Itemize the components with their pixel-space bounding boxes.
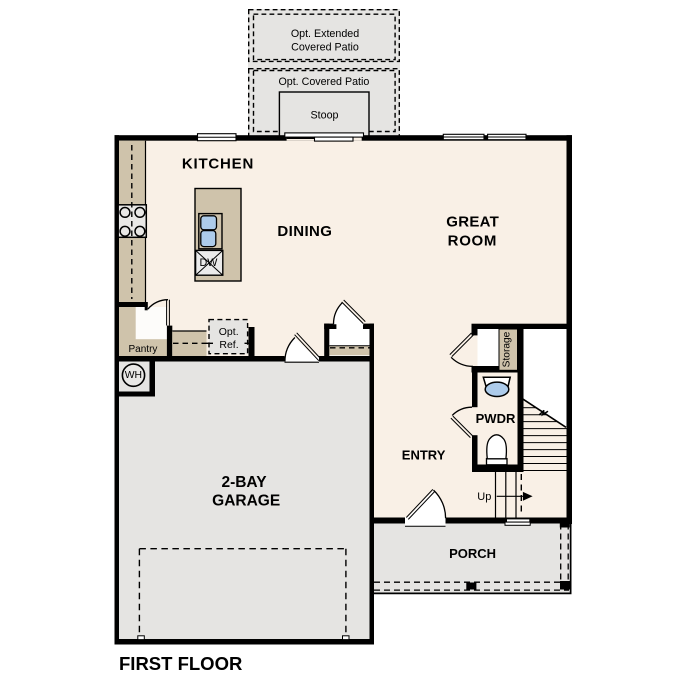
svg-text:2-BAY: 2-BAY [221,474,267,491]
svg-text:Storage: Storage [501,331,512,367]
svg-text:KITCHEN: KITCHEN [182,155,254,172]
svg-text:DINING: DINING [277,223,332,240]
svg-text:ROOM: ROOM [448,233,497,250]
svg-text:WH: WH [125,370,142,381]
svg-text:GREAT: GREAT [446,213,499,230]
svg-text:PWDR: PWDR [476,411,516,426]
svg-text:Opt.: Opt. [219,326,239,338]
svg-text:Ref.: Ref. [219,339,238,351]
svg-text:Up: Up [477,491,491,503]
svg-text:Stoop: Stoop [311,109,339,121]
svg-text:Opt. Extended: Opt. Extended [291,28,359,40]
svg-text:Covered Patio: Covered Patio [291,41,359,53]
svg-text:PORCH: PORCH [449,546,496,561]
svg-text:GARAGE: GARAGE [212,492,280,509]
svg-text:DW: DW [200,257,219,269]
svg-text:Opt. Covered Patio: Opt. Covered Patio [278,76,369,88]
svg-text:ENTRY: ENTRY [402,447,446,462]
svg-text:FIRST FLOOR: FIRST FLOOR [119,653,242,674]
svg-text:Pantry: Pantry [129,344,158,355]
